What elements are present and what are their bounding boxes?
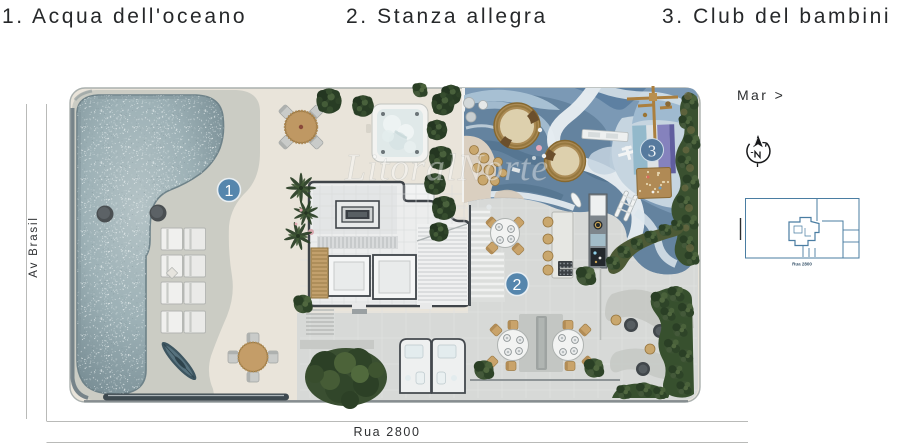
svg-text:Rua 2800: Rua 2800 (353, 425, 420, 439)
svg-text:3: 3 (648, 142, 657, 161)
svg-text:Av Brasil: Av Brasil (28, 216, 40, 277)
svg-text:1. Acqua dell'oceano: 1. Acqua dell'oceano (2, 5, 247, 28)
svg-text:LitoralNorte: LitoralNorte (344, 147, 549, 189)
svg-text:Mar >: Mar > (737, 87, 785, 103)
svg-text:2. Stanza allegra: 2. Stanza allegra (346, 5, 548, 28)
svg-text:3. Club del bambini: 3. Club del bambini (662, 5, 891, 28)
svg-text:1: 1 (225, 183, 234, 200)
svg-text:Rua 2800: Rua 2800 (792, 262, 812, 267)
svg-text:2: 2 (513, 277, 522, 294)
